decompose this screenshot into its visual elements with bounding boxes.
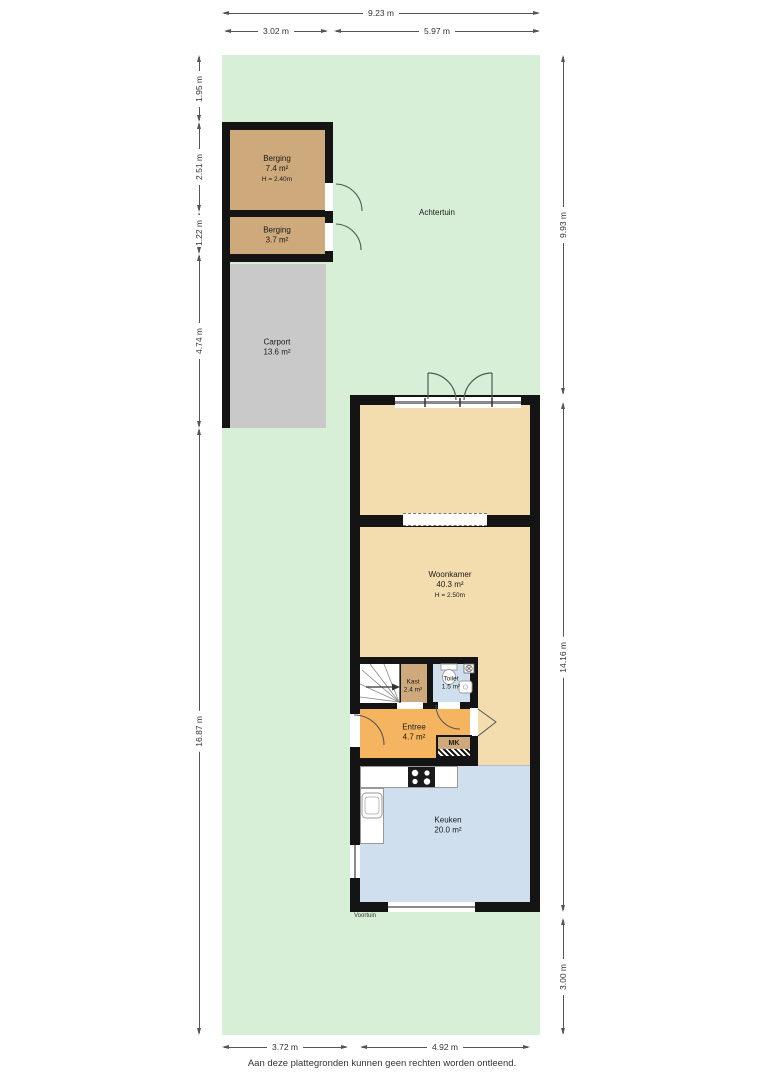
dimension-left-2: 2.51 m xyxy=(192,122,206,212)
keuken-front-window xyxy=(388,902,475,912)
wall-carport-left xyxy=(222,262,230,428)
kitchen-counter-top xyxy=(360,766,458,788)
dimension-left-3: 1.22 m xyxy=(192,212,206,254)
room-label-kast: Kast 2.4 m² xyxy=(404,679,422,696)
dimension-left-4: 4.74 m xyxy=(192,254,206,428)
dimension-label: 1.22 m xyxy=(194,215,204,251)
dimension-left-1: 1.95 m xyxy=(192,55,206,122)
room-floor-tuinkamer xyxy=(360,405,530,515)
dimension-label: 9.23 m xyxy=(363,8,399,18)
room-label-keuken: Keuken 20.0 m² xyxy=(434,816,461,837)
dimension-right-3: 3.00 m xyxy=(556,918,570,1035)
keuken-side-window xyxy=(350,845,360,878)
dimension-label: 1.95 m xyxy=(194,71,204,107)
meterkast-label: MK xyxy=(438,737,470,749)
berging2-door-opening xyxy=(325,223,333,251)
dimension-label: 3.00 m xyxy=(558,959,568,995)
room-label-toilet: Toilet 1.5 m² xyxy=(442,676,460,693)
woonkamer-passage-opening xyxy=(403,513,487,526)
dimension-label: 4.92 m xyxy=(427,1042,463,1052)
woonkamer-door-opening xyxy=(470,708,478,736)
room-label-berging2: Berging 3.7 m² xyxy=(263,226,291,247)
garden-front-label: Voortuin xyxy=(354,913,376,921)
toilet-door-opening xyxy=(438,702,460,709)
berging1-door-opening xyxy=(325,183,333,211)
room-floor-woonkamer-strip xyxy=(478,657,530,766)
room-label-entree: Entree 4.7 m² xyxy=(402,723,426,744)
room-label-berging1: Berging 7.4 m² H = 2.40m xyxy=(262,154,292,184)
dimension-bottom-right: 4.92 m xyxy=(360,1040,530,1054)
room-label-carport: Carport 13.6 m² xyxy=(263,338,290,359)
dimension-right-2: 14.16 m xyxy=(556,402,570,912)
dimension-top-left: 3.02 m xyxy=(224,24,328,38)
dimension-left-5: 16.87 m xyxy=(192,428,206,1035)
dimension-right-1: 9.93 m xyxy=(556,55,570,395)
dimension-label: 14.16 m xyxy=(558,637,568,678)
dimension-label: 9.93 m xyxy=(558,207,568,243)
garden-doors-window xyxy=(395,397,521,408)
dimension-bottom-left: 3.72 m xyxy=(222,1040,348,1054)
dimension-top-total: 9.23 m xyxy=(222,6,540,20)
meterkast-box: MK xyxy=(436,735,472,758)
kitchen-counter-left xyxy=(360,788,384,844)
open-boundary-line xyxy=(478,765,530,766)
meterkast-hatch xyxy=(438,749,470,756)
dimension-label: 4.74 m xyxy=(194,323,204,359)
dimension-label: 3.02 m xyxy=(258,26,294,36)
dimension-top-right: 5.97 m xyxy=(334,24,540,38)
dimension-label: 3.72 m xyxy=(267,1042,303,1052)
garden-back-label: Achtertuin xyxy=(419,208,455,218)
front-door-opening xyxy=(350,714,360,747)
stairs-passage-opening xyxy=(397,702,423,709)
room-label-woonkamer: Woonkamer 40.3 m² H = 2.50m xyxy=(429,570,472,600)
footer-disclaimer: Aan deze plattegronden kunnen geen recht… xyxy=(0,1058,764,1069)
floorplan-page: MK xyxy=(0,0,764,1080)
room-floor-stairs xyxy=(360,664,400,703)
dimension-label: 2.51 m xyxy=(194,149,204,185)
dimension-label: 5.97 m xyxy=(419,26,455,36)
dimension-label: 16.87 m xyxy=(194,711,204,752)
